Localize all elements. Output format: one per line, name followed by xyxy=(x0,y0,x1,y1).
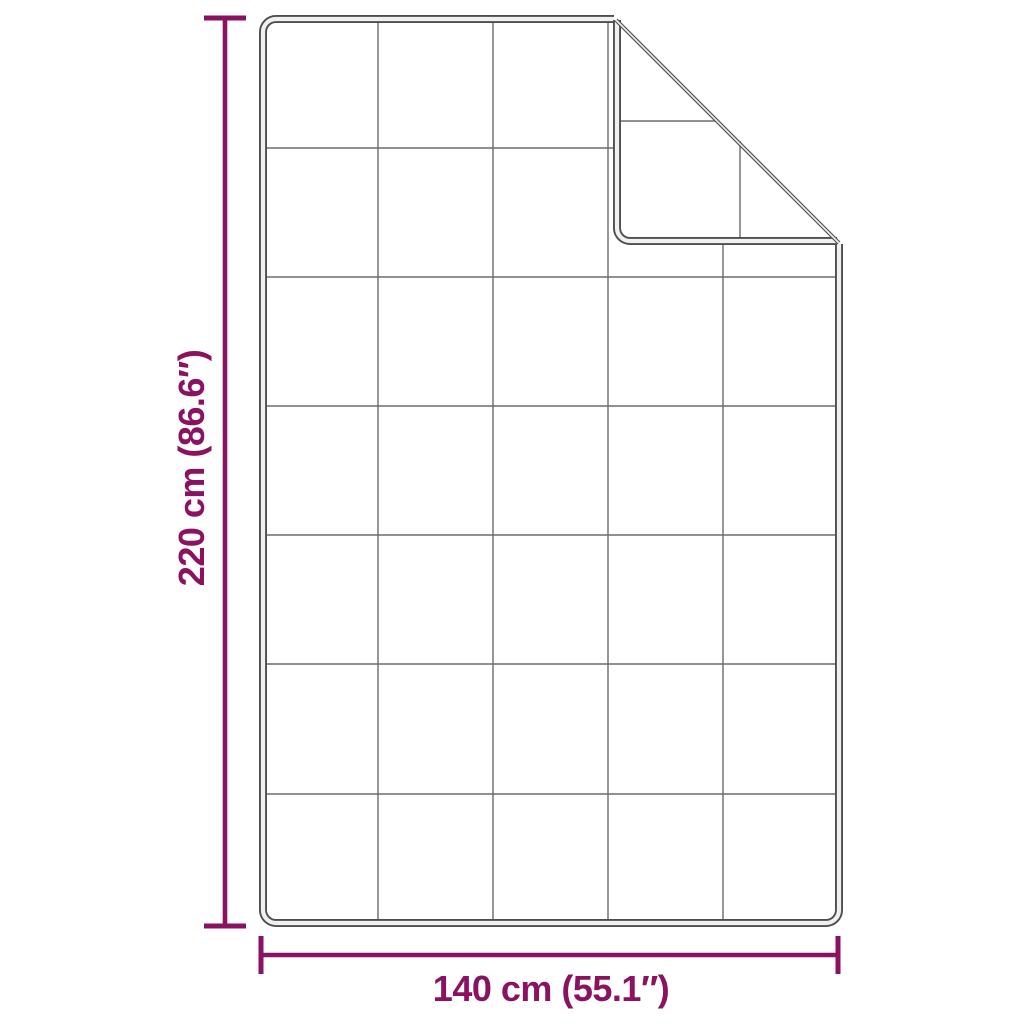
width-dimension-label: 140 cm (55.1″) xyxy=(351,971,751,1007)
blanket-diagram-canvas xyxy=(0,0,1024,1024)
dimension-diagram: 220 cm (86.6″) 140 cm (55.1″) xyxy=(0,0,1024,1024)
height-dimension-label: 220 cm (86.6″) xyxy=(174,318,210,618)
